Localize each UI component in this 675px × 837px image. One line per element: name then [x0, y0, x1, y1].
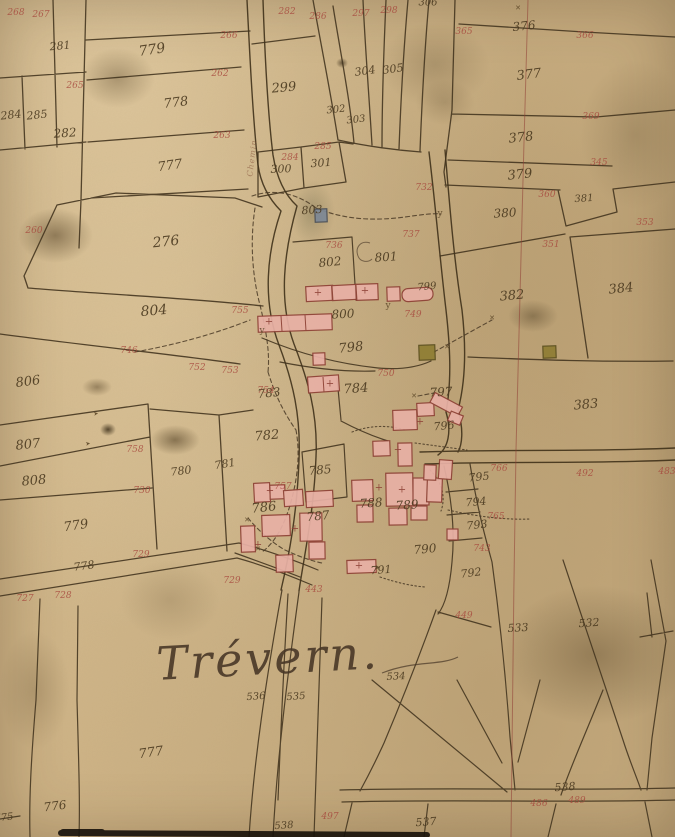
- survey-mark: +: [394, 445, 402, 456]
- revision-number: 345: [590, 158, 607, 168]
- survey-mark: +: [326, 379, 334, 390]
- survey-mark: y: [437, 209, 442, 219]
- parcel-number: 777: [138, 744, 165, 762]
- revision-number: 286: [309, 12, 326, 22]
- survey-mark: y: [259, 326, 264, 336]
- parcel-number: 785: [308, 462, 332, 478]
- revision-number: 268: [7, 8, 24, 18]
- parcel-number: 787: [306, 508, 330, 524]
- revision-number: 284: [281, 153, 298, 163]
- revision-number: 360: [538, 190, 555, 200]
- revision-number: 365: [455, 27, 472, 37]
- revision-number: 749: [404, 310, 421, 320]
- revision-number: 298: [380, 6, 397, 16]
- revision-number: 267: [32, 10, 49, 20]
- parcel-number: 791: [370, 563, 392, 577]
- revision-number: 737: [402, 230, 419, 240]
- parcel-number: 376: [512, 18, 536, 34]
- parcel-number: 380: [493, 205, 517, 221]
- revision-number: 449: [455, 611, 472, 621]
- survey-mark: +: [254, 540, 262, 551]
- revision-number: 260: [25, 226, 42, 236]
- revision-number: 766: [490, 464, 507, 474]
- revision-number: 353: [636, 218, 653, 228]
- parcel-number: 383: [573, 396, 599, 413]
- parcel-number: 804: [140, 302, 168, 320]
- parcel-number: 779: [138, 40, 167, 60]
- parcel-number: 808: [21, 472, 47, 489]
- revision-number: 729: [223, 576, 240, 586]
- parcel-number: 777: [157, 157, 184, 175]
- parcel-number: 780: [170, 463, 192, 478]
- parcel-number: 299: [271, 79, 297, 96]
- road-name-label: Chemin: [245, 139, 258, 177]
- parcel-number: 792: [460, 565, 482, 580]
- revision-number: 765: [487, 512, 504, 522]
- parcel-number: 381: [574, 193, 594, 205]
- revision-number: 369: [582, 112, 599, 122]
- survey-mark: +: [266, 486, 274, 497]
- parcel-number: 778: [73, 558, 96, 574]
- survey-mark: ➤: [85, 440, 91, 448]
- survey-mark: +: [314, 288, 322, 299]
- survey-mark: y: [385, 301, 390, 311]
- parcel-number: 778: [163, 94, 189, 112]
- parcel-number: 784: [343, 381, 369, 398]
- revision-number: 729: [132, 550, 149, 560]
- survey-mark: ✕: [444, 343, 450, 351]
- parcel-number: 281: [49, 39, 71, 54]
- survey-mark: +: [375, 483, 383, 494]
- revision-number: 285: [314, 142, 331, 152]
- parcel-number: 534: [386, 671, 406, 683]
- survey-mark: +: [355, 561, 363, 572]
- revision-number: 265: [66, 81, 83, 91]
- revision-number: 262: [211, 69, 228, 79]
- revision-number: 497: [321, 812, 338, 822]
- parcel-number: 536: [246, 691, 266, 703]
- revision-number: 752: [188, 363, 205, 373]
- place-name-label: Trévern.: [155, 625, 381, 691]
- parcel-number: 781: [214, 456, 237, 472]
- survey-mark: ✕: [489, 314, 495, 322]
- revision-number: 757: [274, 482, 291, 492]
- parcel-number: 798: [338, 339, 364, 357]
- parcel-number: 300: [270, 162, 291, 176]
- parcel-number: 782: [254, 427, 280, 444]
- revision-number: 366: [576, 31, 593, 41]
- revision-number: 758: [126, 445, 143, 455]
- parcel-number: 303: [346, 114, 366, 127]
- survey-mark: +: [361, 286, 369, 297]
- parcel-number: 538: [554, 780, 576, 794]
- parcel-number: 795: [468, 469, 490, 484]
- parcel-number: 776: [43, 798, 67, 815]
- survey-mark: ✕: [411, 392, 417, 400]
- revision-number: 753: [221, 366, 238, 376]
- parcel-number: 800: [331, 306, 355, 321]
- parcel-number: 301: [310, 156, 332, 170]
- parcel-number: 538: [274, 820, 294, 832]
- parcel-number: 535: [286, 691, 306, 703]
- parcel-number: 384: [608, 280, 634, 298]
- parcel-number: 797: [429, 384, 453, 399]
- parcel-number: 790: [413, 541, 437, 557]
- parcel-number: 775: [0, 812, 14, 825]
- survey-mark: ✕: [244, 516, 250, 524]
- revision-number: 486: [530, 799, 547, 809]
- parcel-number: 533: [507, 621, 529, 635]
- revision-number: 732: [415, 183, 432, 193]
- revision-number: 727: [16, 594, 33, 604]
- parcel-number: 377: [516, 66, 542, 84]
- survey-mark: +: [416, 417, 424, 428]
- parcel-number: 796: [433, 419, 455, 434]
- parcel-number: 807: [15, 436, 41, 454]
- parcel-number: 304: [354, 63, 377, 79]
- revision-number: 483: [658, 467, 675, 477]
- survey-mark: ✕: [515, 4, 521, 12]
- parcel-number: 803: [301, 203, 323, 217]
- revision-number: 297: [352, 9, 369, 19]
- parcel-number: 806: [15, 373, 41, 391]
- parcel-number: 276: [152, 233, 180, 252]
- revision-number: 266: [220, 31, 237, 41]
- parcel-number: 789: [395, 497, 419, 513]
- map-annotations: 2817792842852827787772993023033043053063…: [0, 0, 675, 837]
- parcel-number: 794: [465, 495, 487, 510]
- parcel-number: 284: [0, 107, 22, 122]
- revision-number: 489: [568, 796, 585, 806]
- revision-number: 263: [213, 131, 230, 141]
- parcel-number: 799: [417, 281, 437, 294]
- revision-number: 728: [54, 591, 71, 601]
- survey-mark: +: [398, 485, 406, 496]
- parcel-number: 378: [508, 129, 534, 147]
- parcel-number: 788: [359, 495, 383, 511]
- parcel-number: 537: [415, 815, 437, 829]
- parcel-number: 802: [318, 254, 342, 270]
- cadastral-map-sheet: 2817792842852827787772993023033043053063…: [0, 0, 675, 837]
- revision-number: 755: [231, 306, 248, 316]
- revision-number: 443: [305, 585, 322, 595]
- parcel-number: 786: [251, 499, 277, 517]
- parcel-number: 379: [507, 166, 533, 184]
- parcel-number: 305: [382, 61, 405, 77]
- survey-mark: +: [291, 524, 299, 535]
- survey-mark: ➤: [93, 410, 99, 418]
- parcel-number: 302: [326, 104, 346, 117]
- parcel-number: 306: [418, 0, 437, 9]
- parcel-number: 382: [499, 287, 525, 304]
- revision-number: 351: [542, 240, 559, 250]
- parcel-number: 779: [63, 517, 90, 535]
- revision-number: 743: [473, 544, 490, 554]
- revision-number: 754: [257, 386, 274, 396]
- revision-number: 492: [576, 469, 593, 479]
- survey-mark: +: [265, 317, 273, 328]
- revision-number: 736: [325, 241, 342, 251]
- parcel-number: 801: [374, 249, 398, 265]
- parcel-number: 285: [26, 107, 48, 122]
- parcel-number: 532: [578, 616, 600, 630]
- parcel-number: 793: [466, 517, 488, 532]
- survey-mark: ▸: [376, 563, 380, 572]
- revision-number: 746: [120, 346, 137, 356]
- revision-number: 750: [377, 369, 394, 379]
- revision-number: 730: [133, 486, 150, 496]
- revision-number: 282: [278, 7, 295, 17]
- parcel-number: 282: [53, 125, 77, 141]
